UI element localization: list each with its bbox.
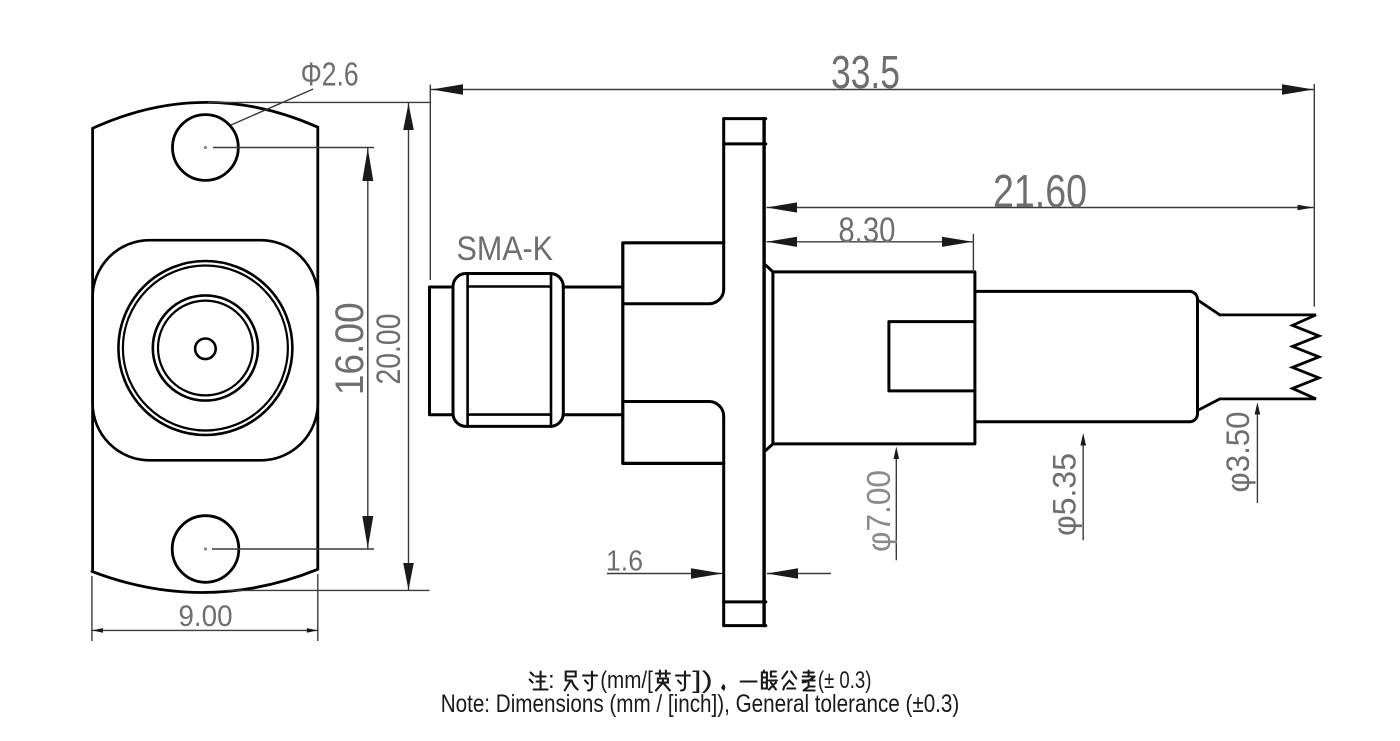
svg-text:SMA-K: SMA-K	[457, 230, 554, 268]
svg-text:33.5: 33.5	[831, 46, 900, 98]
svg-text:8.30: 8.30	[838, 211, 895, 250]
svg-text:φ3.50: φ3.50	[1220, 412, 1256, 493]
svg-text:20.00: 20.00	[370, 314, 408, 385]
svg-text:φ5.35: φ5.35	[1047, 453, 1083, 536]
svg-text:16.00: 16.00	[328, 302, 372, 395]
svg-text:Φ2.6: Φ2.6	[301, 56, 359, 93]
svg-text:21.60: 21.60	[993, 165, 1087, 217]
svg-text:φ7.00: φ7.00	[860, 470, 897, 552]
svg-text:Note: Dimensions (mm / [inch]): Note: Dimensions (mm / [inch]), General …	[441, 690, 960, 718]
svg-text:1.6: 1.6	[606, 546, 643, 578]
svg-text:9.00: 9.00	[179, 600, 233, 633]
